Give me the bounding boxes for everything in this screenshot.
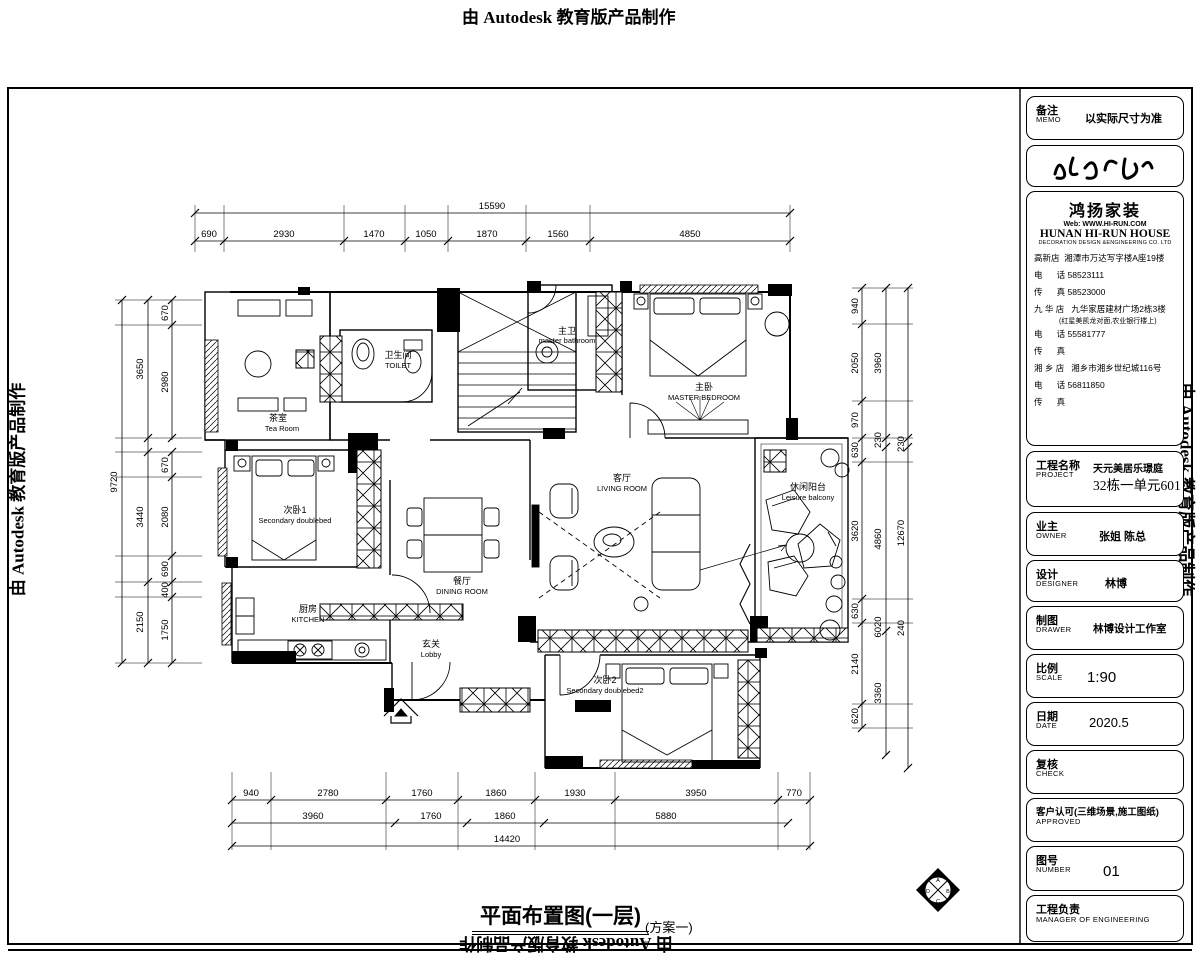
number-value: 01 xyxy=(1103,863,1120,880)
room-label-lobby: 玄关 xyxy=(422,638,440,649)
dim-label: 2930 xyxy=(273,229,294,240)
tb-logo xyxy=(1026,145,1184,187)
drawer-label-en: DRAWER xyxy=(1036,625,1071,634)
room-label-kitchen: 厨房 xyxy=(299,603,317,614)
designer-label-en: DESIGNER xyxy=(1036,579,1078,588)
svg-text:Tea Room: Tea Room xyxy=(265,424,299,433)
dim-label: 400 xyxy=(160,582,171,598)
cad-drawing-page: 由 Autodesk 教育版产品制作 由 Autodesk 教育版产品制作 由 … xyxy=(0,0,1200,960)
dim-label: 3620 xyxy=(850,520,861,541)
room-label-dining: 餐厅 xyxy=(453,575,471,586)
dim-label: 1560 xyxy=(547,229,568,240)
tb-drawer: 制图 DRAWER 林博设计工作室 xyxy=(1026,606,1184,650)
dim-label: 3960 xyxy=(873,352,884,373)
memo-label-en: MEMO xyxy=(1036,115,1061,124)
hi-run-logo-mark xyxy=(1027,146,1183,184)
project-label-en: PROJECT xyxy=(1036,470,1074,479)
dim-label: 1870 xyxy=(476,229,497,240)
index-symbol: AB CD xyxy=(916,868,960,912)
dim-label: 1470 xyxy=(363,229,384,240)
dim-label: 1760 xyxy=(411,788,432,799)
dim-label: 770 xyxy=(786,788,802,799)
dim-label: 690 xyxy=(201,229,217,240)
dim-label: 14420 xyxy=(494,834,520,845)
svg-text:MASTER BEDROOM: MASTER BEDROOM xyxy=(668,393,740,402)
svg-text:Secondary doublebed2: Secondary doublebed2 xyxy=(566,686,643,695)
dim-label: 3650 xyxy=(135,358,146,379)
dim-label: 5880 xyxy=(655,811,676,822)
svg-text:Lobby: Lobby xyxy=(421,650,442,659)
dim-label: 1860 xyxy=(485,788,506,799)
room-label-masterbath: 主卫 xyxy=(558,325,576,336)
svg-text:TOILET: TOILET xyxy=(385,361,412,370)
room-label-bed2: 次卧2 xyxy=(593,674,616,685)
manager-label-en: MANAGER OF ENGINEERING xyxy=(1036,915,1150,924)
dim-label: 690 xyxy=(160,561,171,577)
dim-label: 970 xyxy=(850,412,861,428)
dim-label: 2780 xyxy=(317,788,338,799)
contact-line: 电 话 58523111 xyxy=(1027,267,1183,284)
tb-number: 图号 NUMBER 01 xyxy=(1026,846,1184,891)
dim-chain-bottom: 940 2780 1760 1860 1930 3950 770 3960 17… xyxy=(228,772,814,850)
company-website: Web: WWW.HI-RUN.COM xyxy=(1027,221,1183,228)
dim-label: 2050 xyxy=(850,352,861,373)
dim-label: 6020 xyxy=(873,616,884,637)
contact-line: 电 话 56811850 xyxy=(1027,377,1183,394)
room-label-bed1: 次卧1 xyxy=(283,504,306,515)
svg-text:master bathroom: master bathroom xyxy=(539,336,596,345)
dim-label: 3960 xyxy=(302,811,323,822)
sheet-frame xyxy=(8,88,1192,950)
tb-designer: 设计 DESIGNER 林博 xyxy=(1026,560,1184,602)
svg-text:C: C xyxy=(936,899,940,905)
room-label-balcony: 休闲阳台 xyxy=(790,481,826,492)
drawing-scheme: (方案一) xyxy=(645,917,693,936)
drawer-value: 林博设计工作室 xyxy=(1093,621,1167,636)
floor-plan-canvas: 15590 690 2930 1470 1050 1870 1560 4850 … xyxy=(0,0,1200,960)
room-label-toilet: 卫生间 xyxy=(384,349,411,360)
dim-label: 1930 xyxy=(564,788,585,799)
dim-label: 230 xyxy=(873,432,884,448)
contact-line: 高新店 湘潭市万达写字楼A座19楼 xyxy=(1027,250,1183,267)
approved-label-en: APPROVED xyxy=(1036,817,1081,826)
contact-line: 传 真 58523000 xyxy=(1027,284,1183,301)
svg-text:LIVING ROOM: LIVING ROOM xyxy=(597,484,647,493)
contact-line: (红星美凯龙对面,农业银行楼上) xyxy=(1027,318,1183,326)
project-name: 天元美居乐璟庭 xyxy=(1093,460,1163,475)
contact-line: 传 真 xyxy=(1027,394,1183,411)
tb-memo: 备注 MEMO 以实际尺寸为准 xyxy=(1026,96,1184,140)
scale-label-en: SCALE xyxy=(1036,673,1063,682)
dim-label: 940 xyxy=(850,298,861,314)
dim-label: 1760 xyxy=(420,811,441,822)
owner-value: 张姐 陈总 xyxy=(1099,528,1146,544)
dim-chain-top: 15590 690 2930 1470 1050 1870 1560 4850 xyxy=(191,201,794,252)
date-label-en: DATE xyxy=(1036,721,1057,730)
dim-label: 3440 xyxy=(135,506,146,527)
dim-chain-right: 940 2050 970 630 3620 630 2140 620 3960 … xyxy=(850,284,913,772)
dim-label: 620 xyxy=(850,708,861,724)
tb-company: 鸿扬家装 Web: WWW.HI-RUN.COM HUNAN HI-RUN HO… xyxy=(1026,191,1184,446)
dim-label: 2140 xyxy=(850,653,861,674)
dim-chain-left: 9720 3650 3440 2150 670 2980 670 2080 69… xyxy=(109,296,202,667)
svg-text:KITCHEN: KITCHEN xyxy=(292,615,325,624)
approved-label-cn: 客户认可(三维场景,施工图纸) xyxy=(1036,804,1159,818)
svg-text:D: D xyxy=(926,889,930,895)
project-unit: 32栋一单元601 xyxy=(1093,474,1181,494)
dim-label: 240 xyxy=(896,620,907,636)
owner-label-en: OWNER xyxy=(1036,531,1067,540)
dim-label: 230 xyxy=(896,436,907,452)
tb-check: 复核 CHECK xyxy=(1026,750,1184,794)
dim-label: 630 xyxy=(850,603,861,619)
svg-text:DINING ROOM: DINING ROOM xyxy=(436,587,488,596)
room-label-tea: 茶室 xyxy=(269,412,287,423)
dim-label: 15590 xyxy=(479,201,505,212)
staircase xyxy=(458,292,576,429)
dim-label: 670 xyxy=(160,457,171,473)
tb-scale: 比例 SCALE 1:90 xyxy=(1026,654,1184,698)
room-label-living: 客厅 xyxy=(613,472,631,483)
dim-label: 2150 xyxy=(135,611,146,632)
date-value: 2020.5 xyxy=(1089,715,1129,730)
dim-label: 12670 xyxy=(896,520,907,546)
dim-label: 4860 xyxy=(873,528,884,549)
dim-label: 4850 xyxy=(679,229,700,240)
contact-line: 九 华 店 九华家居建材广场2栋3楼 xyxy=(1027,301,1183,318)
dim-label: 1860 xyxy=(494,811,515,822)
tb-owner: 业主 OWNER 张姐 陈总 xyxy=(1026,512,1184,556)
company-subtitle: DECORATION DESIGN &ENGINEERING CO. LTD xyxy=(1027,240,1183,246)
company-name-en: HUNAN HI-RUN HOUSE xyxy=(1027,228,1183,240)
dim-label: 1050 xyxy=(415,229,436,240)
company-contact-lines: 高新店 湘潭市万达写字楼A座19楼 电 话 58523111 传 真 58523… xyxy=(1027,250,1183,411)
designer-value: 林博 xyxy=(1105,575,1127,591)
drawing-title: 平面布置图(一层) xyxy=(472,900,649,935)
tb-date: 日期 DATE 2020.5 xyxy=(1026,702,1184,746)
dim-label: 670 xyxy=(160,305,171,321)
dim-label: 2980 xyxy=(160,371,171,392)
contact-line: 电 话 55581777 xyxy=(1027,326,1183,343)
tb-project: 工程名称 PROJECT 天元美居乐璟庭 32栋一单元601 xyxy=(1026,451,1184,507)
svg-text:Leisure balcony: Leisure balcony xyxy=(782,493,835,502)
tb-approved: 客户认可(三维场景,施工图纸) APPROVED xyxy=(1026,798,1184,842)
dim-label: 3950 xyxy=(685,788,706,799)
dim-label: 1750 xyxy=(160,619,171,640)
dim-label: 940 xyxy=(243,788,259,799)
dim-label: 9720 xyxy=(109,471,120,492)
contact-line: 传 真 xyxy=(1027,343,1183,360)
dim-label: 630 xyxy=(850,442,861,458)
contact-line: 湘 乡 店 湘乡市湘乡世纪城116号 xyxy=(1027,360,1183,377)
room-label-master: 主卧 xyxy=(695,381,713,392)
number-label-en: NUMBER xyxy=(1036,865,1071,874)
svg-text:A: A xyxy=(936,878,940,884)
memo-value: 以实际尺寸为准 xyxy=(1085,110,1162,126)
svg-text:Secondary doublebed: Secondary doublebed xyxy=(259,516,332,525)
svg-text:B: B xyxy=(946,889,950,895)
scale-value: 1:90 xyxy=(1087,669,1116,686)
company-name: 鸿扬家装 xyxy=(1027,197,1183,221)
dim-label: 3360 xyxy=(873,682,884,703)
check-label-en: CHECK xyxy=(1036,769,1064,778)
dim-label: 2080 xyxy=(160,506,171,527)
tb-manager: 工程负责 MANAGER OF ENGINEERING xyxy=(1026,895,1184,942)
